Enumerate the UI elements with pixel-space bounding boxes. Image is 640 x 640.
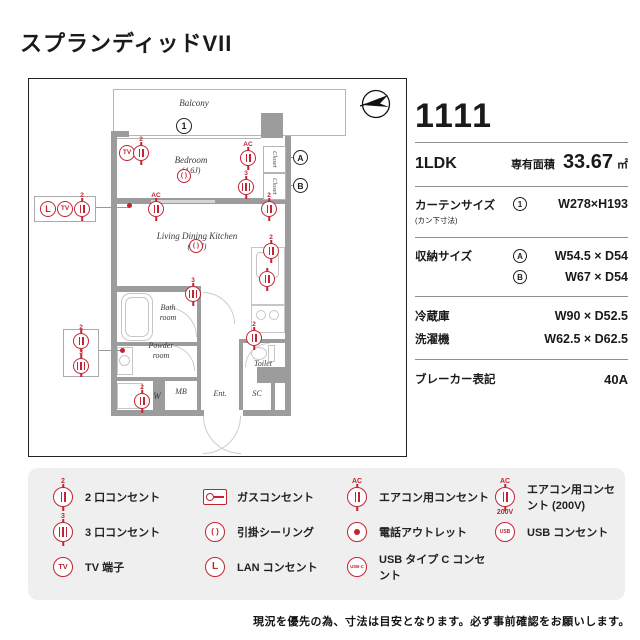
divider	[415, 359, 628, 360]
ac-outlet-icon: AC	[148, 201, 164, 217]
legend-item: 電話アウトレット	[344, 521, 492, 543]
legend-item: USB-C USB タイプ C コンセント	[344, 556, 492, 578]
location-dot	[120, 348, 125, 353]
legend-label: 引掛シーリング	[237, 524, 314, 540]
legend-label: 電話アウトレット	[379, 524, 467, 540]
storage-size-label: 収納サイズ	[415, 248, 507, 264]
layout-type: 1LDK	[415, 155, 457, 173]
outlet-3-icon: 3	[238, 179, 254, 195]
outlet-2-icon: 2	[73, 333, 89, 349]
curtain-size-label: カーテンサイズ (カン下寸法)	[415, 197, 507, 226]
storage-mark-b: B	[293, 178, 308, 193]
lan-outlet-icon: L	[40, 201, 56, 217]
outlet-2-icon: 2	[133, 145, 149, 161]
ac-outlet-icon: AC	[347, 487, 367, 507]
curtain-mark: 1	[513, 197, 527, 211]
wall	[111, 410, 204, 416]
ac-outlet-icon: AC	[240, 150, 256, 166]
vanity-sink	[119, 355, 130, 366]
legend-item: TV TV 端子	[50, 556, 202, 578]
usb-outlet-icon: USB	[495, 522, 515, 542]
room-label-toilet: Toilet	[243, 359, 283, 369]
outlet-2-icon: 2	[53, 487, 73, 507]
curtain-size-sublabel: (カン下寸法)	[415, 215, 507, 226]
legend-label: 3 口コンセント	[85, 524, 160, 540]
legend-item: AC200V エアコン用コンセント (200V)	[492, 486, 625, 508]
legend-item: L LAN コンセント	[202, 556, 344, 578]
legend-item: ガスコンセント	[202, 486, 344, 508]
legend-label: LAN コンセント	[237, 559, 318, 575]
legend-item: 2 2 口コンセント	[50, 486, 202, 508]
breaker-label: ブレーカー表記	[415, 371, 496, 387]
legend-item: ( ) 引掛シーリング	[202, 521, 344, 543]
room-label-powder: Powderroom	[133, 341, 189, 360]
storage-a-value: W54.5 × D54	[555, 249, 628, 263]
outlet-2-icon: 2	[134, 393, 150, 409]
outlet-3-icon: 3	[73, 358, 89, 374]
wall	[239, 339, 243, 410]
outlet-2-icon: 2	[74, 201, 90, 217]
wall	[257, 367, 291, 383]
stove-burner	[269, 310, 279, 320]
stove-burner	[256, 310, 266, 320]
disclaimer-note: 現況を優先の為、寸法は目安となります。必ず事前確認をお願いします。	[253, 613, 630, 629]
usb-c-outlet-icon: USB-C	[347, 557, 367, 577]
outlet-3-icon: 3	[185, 286, 201, 302]
breaker-value: 40A	[604, 372, 628, 387]
room-label-bedroom: Bedroom (4.6J)	[157, 155, 225, 175]
legend-item: AC エアコン用コンセント	[344, 486, 492, 508]
legend-label: ガスコンセント	[237, 489, 314, 505]
ceiling-light-icon: ( )	[177, 169, 191, 183]
fridge-value: W90 × D52.5	[555, 309, 628, 323]
storage-mark-a: A	[293, 150, 308, 165]
curtain-size-value: W278×H193	[558, 197, 628, 211]
stove-counter	[251, 305, 285, 333]
tv-outlet-icon: TV	[53, 557, 73, 577]
divider	[415, 142, 628, 143]
storage-mark-a: A	[513, 249, 527, 263]
closet-label: Closet	[271, 178, 278, 195]
location-dot	[127, 203, 132, 208]
room-number: 1111	[415, 98, 628, 135]
outlet-callout-box: 2 3	[63, 329, 99, 377]
wall	[271, 383, 275, 410]
fridge-label: 冷蔵庫	[415, 308, 450, 324]
legend-label: TV 端子	[85, 559, 124, 575]
symbol-legend: 2 2 口コンセント 3 3 口コンセント TV TV 端子 ガスコンセント (…	[28, 468, 625, 600]
room-label-bath: Bathroom	[145, 303, 191, 322]
unit-info-panel: 1111 1LDK 専有面積 33.67 ㎡ カーテンサイズ (カン下寸法) 1…	[415, 98, 628, 387]
room-label-washer: W	[147, 391, 167, 402]
divider	[415, 237, 628, 238]
area-label: 専有面積	[511, 156, 555, 172]
legend-item: 3 3 口コンセント	[50, 521, 202, 543]
outlet-2-icon: 2	[246, 330, 262, 346]
area-unit: ㎡	[617, 156, 628, 172]
tv-outlet-icon: TV	[57, 201, 73, 217]
lan-outlet-icon: L	[205, 557, 225, 577]
legend-label: エアコン用コンセント (200V)	[527, 481, 625, 513]
ac-200v-outlet-icon: AC200V	[495, 487, 515, 507]
outlet-2-icon: 2	[261, 201, 277, 217]
legend-label: USB コンセント	[527, 524, 608, 540]
room-label-ent: Ent.	[201, 389, 239, 399]
ceiling-light-icon: ( )	[205, 522, 225, 542]
gas-outlet-icon	[203, 489, 227, 505]
room-label-sc: SC	[243, 389, 271, 399]
divider	[415, 186, 628, 187]
north-compass-icon	[359, 87, 393, 121]
floor-plan: Closet Closet A B L TV 2 2 3 Balcony Bed…	[28, 78, 407, 457]
closet-label: Closet	[271, 151, 278, 168]
wall	[261, 113, 283, 138]
door-arc	[203, 292, 235, 324]
legend-label: エアコン用コンセント	[379, 489, 489, 505]
floor-plan-page: { "title": "スプランディッドVII", "colors": { "a…	[0, 0, 640, 640]
legend-label: USB タイプ C コンセント	[379, 551, 492, 583]
balcony-outline	[113, 89, 346, 136]
storage-b-value: W67 × D54	[565, 270, 628, 284]
divider	[415, 296, 628, 297]
curtain-mark-1: 1	[176, 118, 192, 134]
outlet-2-icon	[259, 271, 275, 287]
ceiling-light-icon: ( )	[189, 239, 203, 253]
closet-a: Closet	[263, 146, 286, 173]
room-label-mb: MB	[167, 387, 195, 397]
washer-value: W62.5 × D62.5	[544, 332, 628, 346]
outlet-callout-box: L TV 2	[34, 196, 96, 222]
outlet-2-icon: 2	[263, 243, 279, 259]
room-label-balcony: Balcony	[149, 98, 239, 109]
outlet-3-icon: 3	[53, 522, 73, 542]
bedroom-size: (4.6J)	[157, 166, 225, 176]
legend-item: USB USB コンセント	[492, 521, 625, 543]
building-title: スプランディッドVII	[20, 26, 232, 58]
phone-outlet-icon	[347, 522, 367, 542]
storage-mark-b: B	[513, 270, 527, 284]
leader-line	[94, 207, 130, 208]
washer-label: 洗濯機	[415, 331, 450, 347]
wall	[243, 410, 291, 416]
area-value: 33.67	[563, 151, 613, 174]
legend-label: 2 口コンセント	[85, 489, 160, 505]
